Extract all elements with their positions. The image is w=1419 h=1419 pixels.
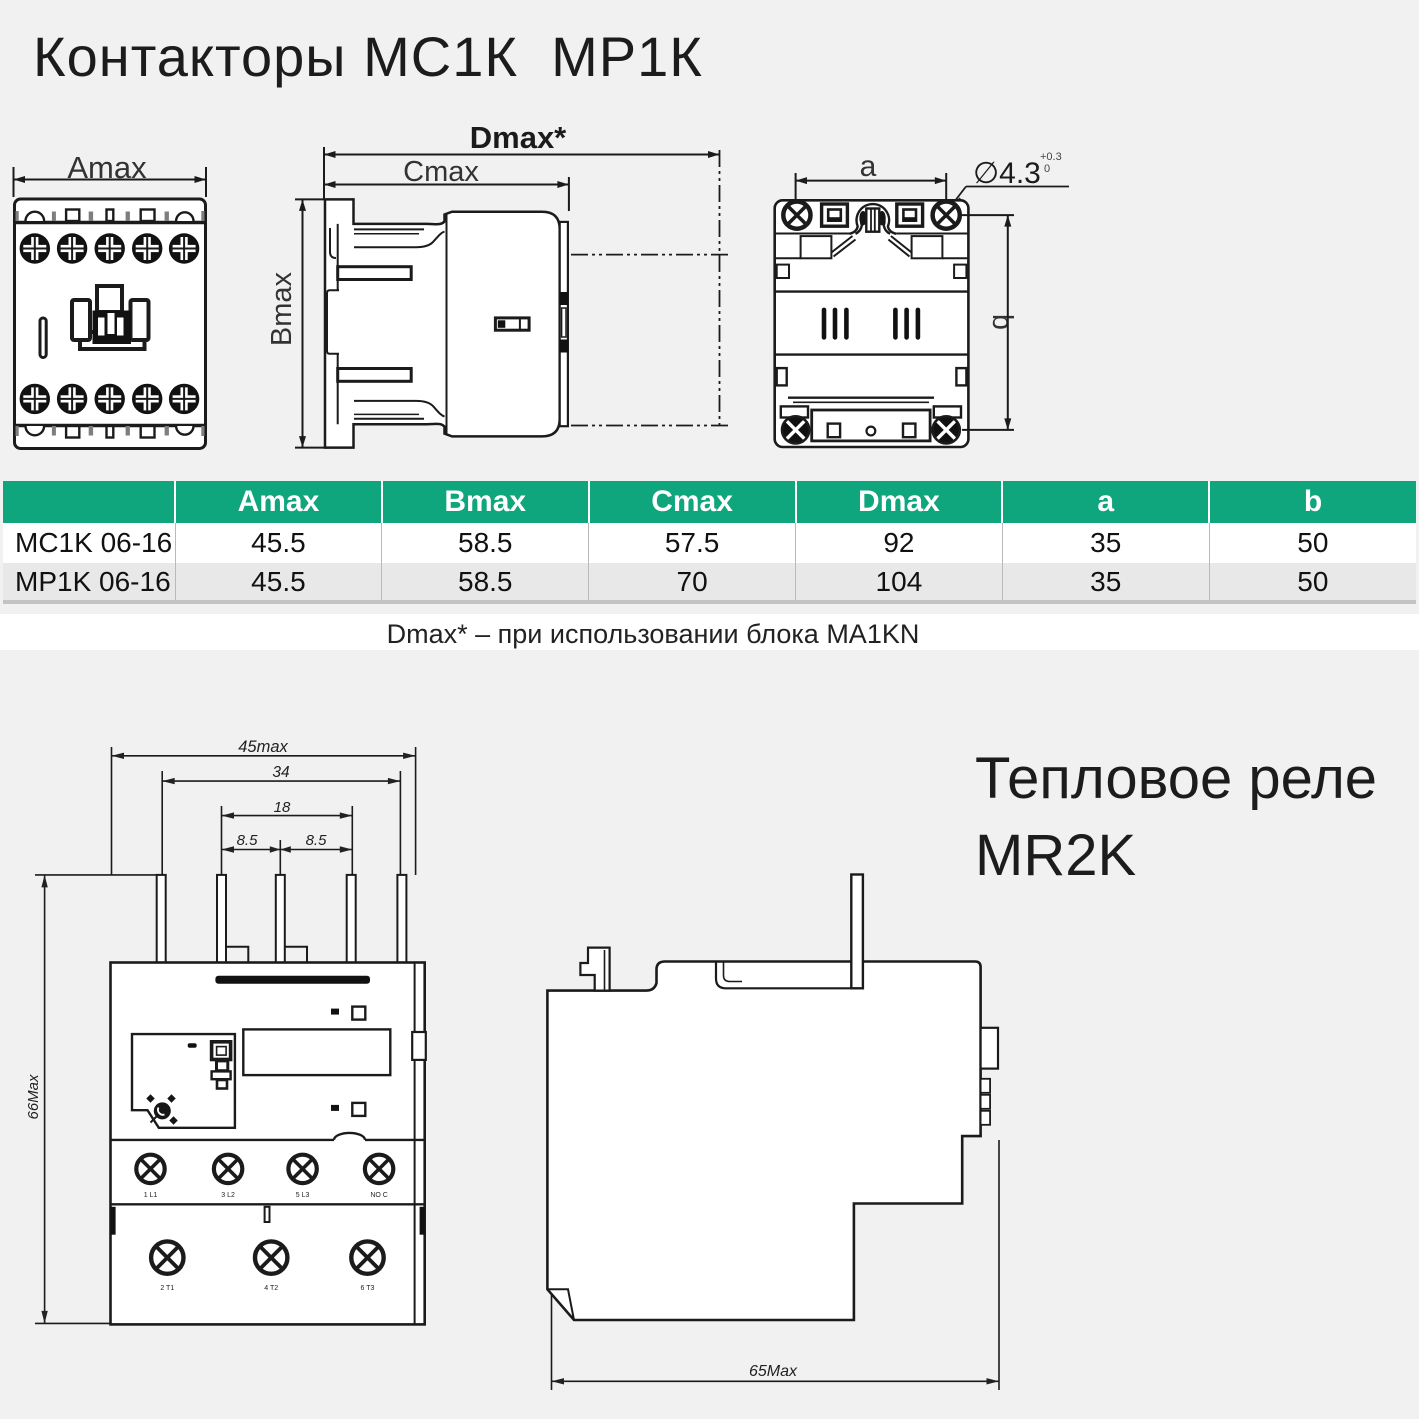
svg-text:Dmax*: Dmax*	[470, 120, 567, 155]
svg-text:66Max: 66Max	[25, 1074, 42, 1120]
svg-text:2 T1: 2 T1	[160, 1285, 174, 1292]
svg-text:6 T3: 6 T3	[361, 1285, 375, 1292]
svg-text:Bmax: Bmax	[266, 271, 298, 346]
svg-text:3 L2: 3 L2	[221, 1192, 235, 1199]
svg-text:+0.3: +0.3	[1040, 151, 1062, 163]
svg-text:34: 34	[272, 764, 290, 781]
svg-text:65Max: 65Max	[749, 1363, 798, 1380]
svg-text:18: 18	[274, 799, 291, 816]
svg-text:8.5: 8.5	[306, 832, 328, 849]
svg-text:4 T2: 4 T2	[264, 1285, 278, 1292]
svg-text:Cmax: Cmax	[403, 156, 479, 188]
svg-text:8.5: 8.5	[237, 832, 259, 849]
svg-text:∅4.3: ∅4.3	[973, 157, 1041, 190]
svg-text:5 L3: 5 L3	[296, 1192, 310, 1199]
svg-text:0: 0	[1044, 163, 1050, 175]
svg-text:a: a	[860, 150, 877, 183]
svg-text:b: b	[986, 314, 1018, 330]
svg-text:NO C: NO C	[370, 1192, 388, 1199]
svg-text:45max: 45max	[238, 738, 288, 756]
svg-text:1 L1: 1 L1	[144, 1192, 158, 1199]
